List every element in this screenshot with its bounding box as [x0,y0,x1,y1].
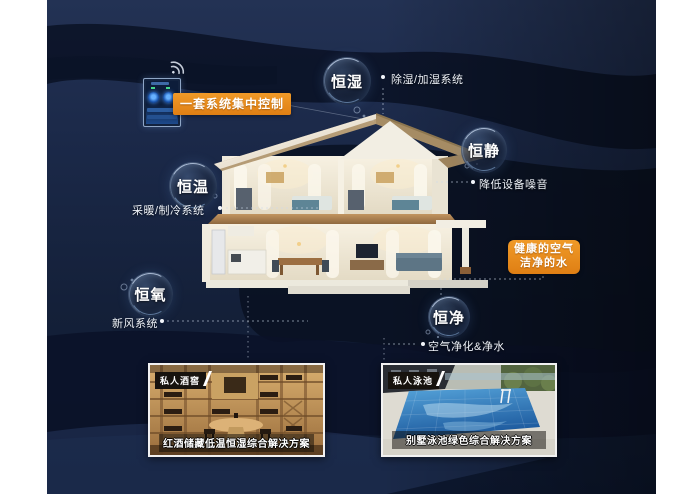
photo-tag: 私人酒窖 [155,372,206,389]
bubble-label: 恒氧 [134,284,166,305]
healthy-air-callout: 健康的空气 洁净的水 [508,240,580,274]
label-dehumidify-system: 除湿/加湿系统 [391,71,464,87]
label-fresh-air-system: 新风系统 [112,315,158,331]
wine-cellar-photo: 私人酒窖 红酒储藏低温恒湿综合解决方案 [148,363,325,457]
photo-caption: 别墅泳池绿色综合解决方案 [392,431,547,449]
bullet-dot [471,180,475,184]
photo-tag: 私人泳池 [388,372,439,389]
central-control-callout: 一套系统集中控制 [173,93,291,115]
healthy-air-line1: 健康的空气 [508,242,580,256]
temperature-knob-icon [148,92,159,103]
healthy-air-line2: 洁净的水 [508,256,580,270]
bullet-dot [218,206,222,210]
label-air-water-purification: 空气净化&净水 [428,338,505,354]
photo-caption: 红酒储藏低温恒湿综合解决方案 [159,434,315,452]
label-noise-reduction: 降低设备噪音 [479,176,548,192]
bullet-dot [421,342,425,346]
bubble-constant-oxygen: 恒氧 [128,272,173,317]
label-heating-cooling-system: 采暖/制冷系统 [132,202,205,218]
bubble-label: 恒净 [433,307,465,328]
pool-photo: 私人泳池 别墅泳池绿色综合解决方案 [381,363,557,457]
bullet-dot [381,75,385,79]
bubble-constant-humidity: 恒湿 [323,57,371,105]
bubble-constant-clean: 恒净 [428,296,470,338]
bubble-label: 恒静 [468,140,500,161]
infographic-canvas: 一套系统集中控制 健康的空气 洁净的水 恒湿 恒静 恒温 恒氧 恒净 除湿/加湿… [0,0,700,497]
bubble-constant-quiet: 恒静 [461,127,507,173]
bubble-label: 恒温 [177,176,209,197]
bullet-dot [160,319,164,323]
bubble-label: 恒湿 [331,71,363,92]
photo-tag-text: 私人酒窖 [160,376,200,386]
photo-tag-text: 私人泳池 [393,376,433,386]
